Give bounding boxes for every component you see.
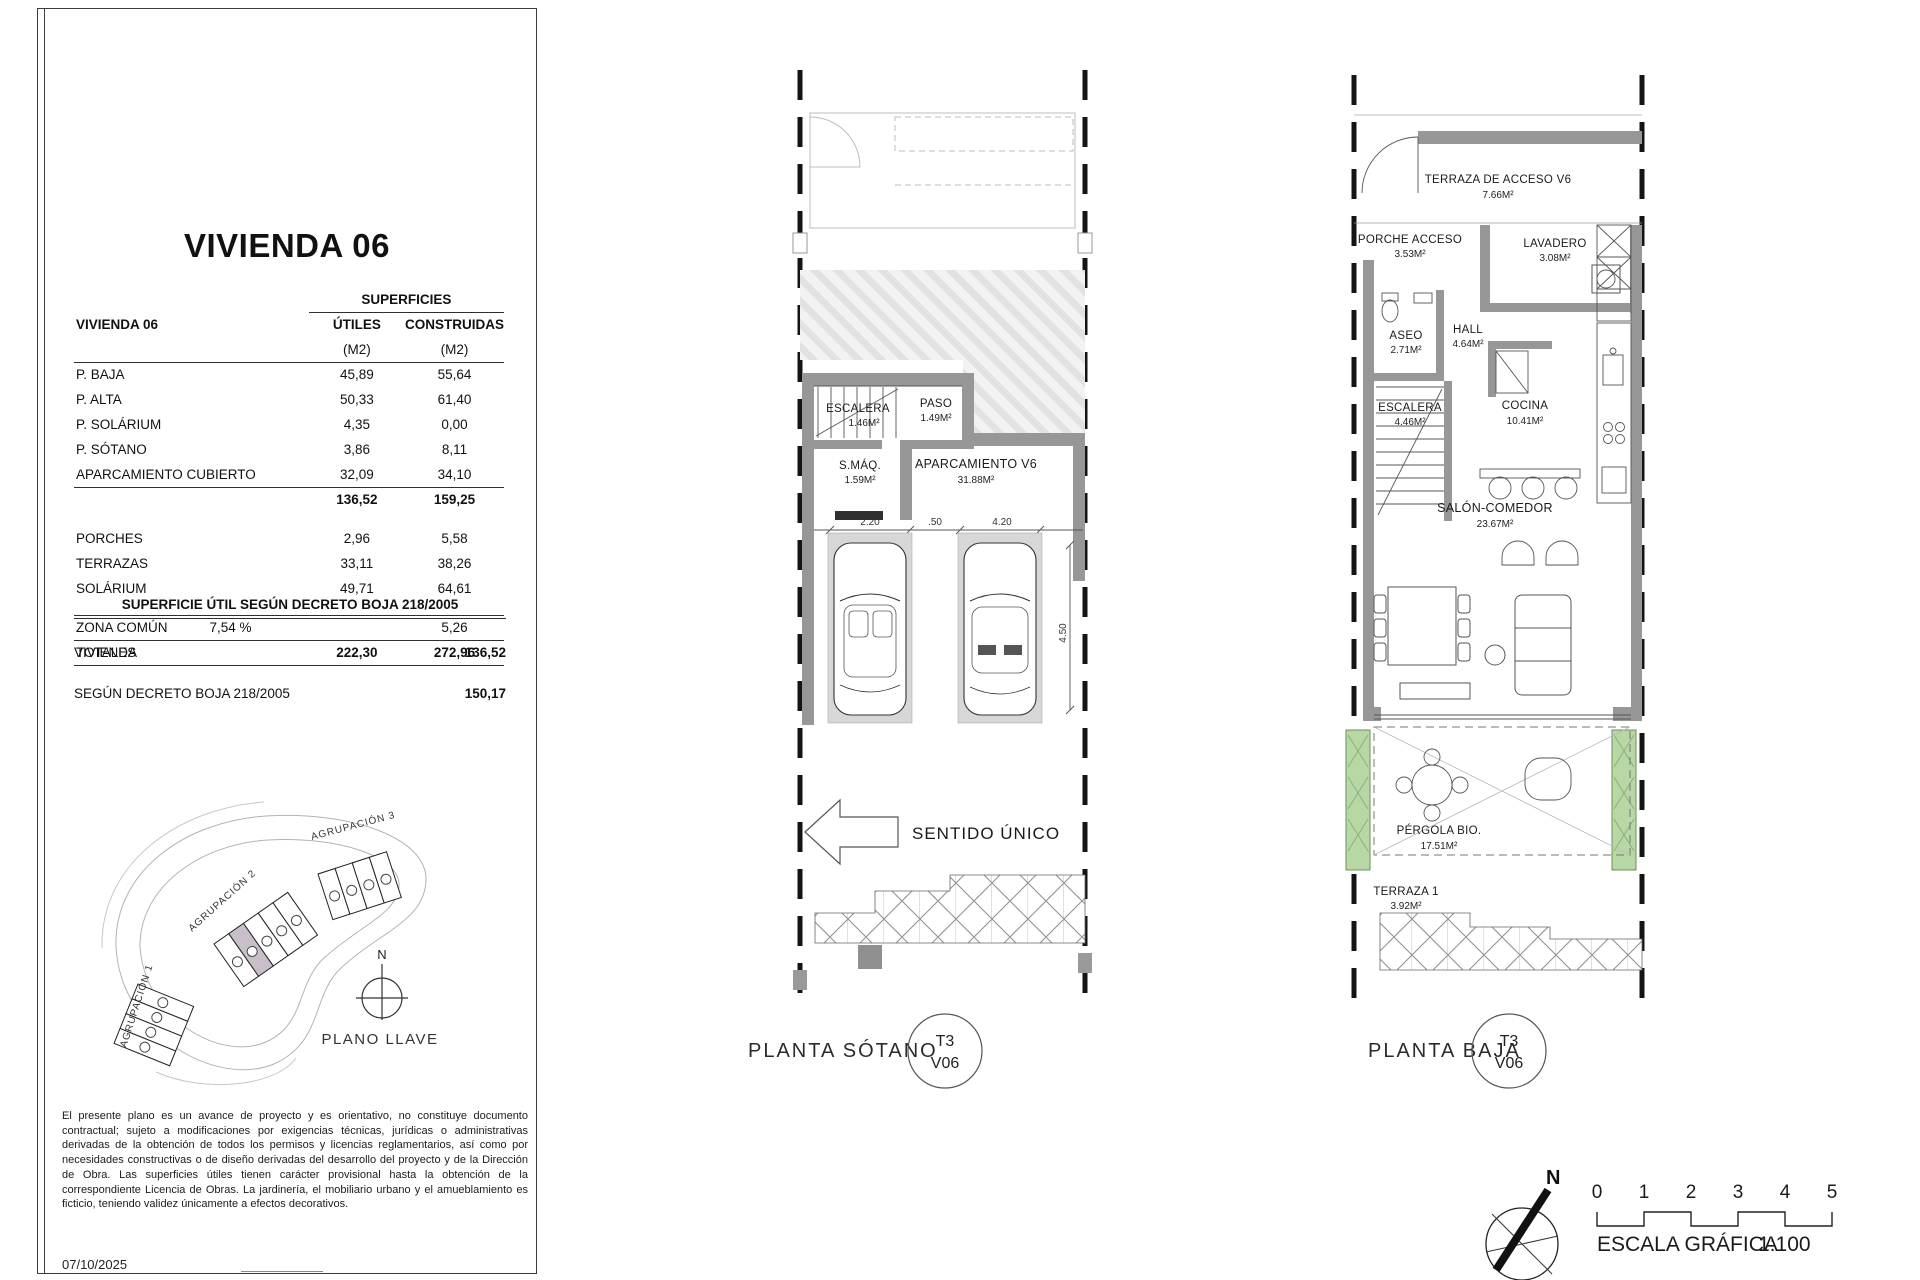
decreto-title: SUPERFICIE ÚTIL SEGÚN DECRETO BOJA 218/2…	[74, 597, 506, 619]
key-plan: AGRUPACIÓN 1 AGRUPACIÓN 2 AGRUPACIÓN 3 N…	[96, 796, 456, 1096]
footer-line	[241, 1271, 323, 1272]
room-label: ASEO	[1389, 330, 1422, 342]
stair-wall	[1444, 381, 1452, 521]
room-area: 17.51M²	[1421, 841, 1458, 852]
dining-table	[1374, 587, 1470, 665]
construidas-unit: (M2)	[405, 337, 504, 362]
key-plan-group-3	[318, 852, 401, 920]
graphic-scale-bar: 0 1 2 3 4 5	[1592, 1182, 1838, 1226]
info-panel: VIVIENDA 06 SUPERFICIES VIVIENDA 06 ÚTIL…	[37, 8, 537, 1274]
room-label: COCINA	[1502, 400, 1549, 412]
svg-text:5: 5	[1827, 1182, 1838, 1203]
surfaces-group-header: SUPERFICIES	[309, 287, 504, 312]
room-label: SALÓN-COMEDOR	[1437, 500, 1553, 515]
kitchen-walls	[1488, 341, 1552, 397]
decreto-row: VIVIENDA 136,52	[74, 645, 506, 660]
room-label: PORCHE ACCESO	[1358, 234, 1462, 246]
room-label: PÉRGOLA BIO.	[1397, 824, 1482, 837]
entry-door	[1362, 137, 1418, 193]
scale-label: ESCALA GRÁFICA	[1597, 1233, 1778, 1256]
terrain-hatch	[800, 270, 1085, 360]
dimension-value: 4.20	[992, 517, 1012, 528]
table-row: TERRAZAS 33,11 38,26	[74, 551, 504, 576]
room-label: TERRAZA DE ACCESO V6	[1425, 174, 1572, 186]
car-convertible	[834, 543, 906, 715]
ground-floor-plan: TERRAZA DE ACCESO V6 7.66M² PORCHE ACCES…	[1340, 55, 1680, 1125]
room-area: 1.49M²	[920, 413, 952, 424]
terrace-retaining-band	[1380, 913, 1642, 970]
plan-badge-unit: V06	[1495, 1055, 1524, 1072]
table-row: P. ALTA 50,33 61,40	[74, 387, 504, 412]
car-sedan	[964, 543, 1036, 715]
wall-marker	[1078, 233, 1092, 253]
dimension-value: .50	[928, 517, 942, 528]
room-area: 10.41M²	[1507, 416, 1544, 427]
room-area: 3.08M²	[1539, 253, 1571, 264]
room-area: 1.59M²	[844, 475, 876, 486]
pillar	[858, 945, 882, 969]
key-plan-north-label: N	[377, 947, 386, 962]
planter-marks	[1348, 735, 1634, 851]
plan-badge-type: T3	[1500, 1033, 1519, 1050]
room-area: 4.46M²	[1394, 417, 1426, 428]
table-row: APARCAMIENTO CUBIERTO 32,09 34,10	[74, 462, 504, 487]
room-label: ESCALERA	[1378, 402, 1442, 414]
room-label: HALL	[1453, 324, 1483, 336]
svg-text:2: 2	[1686, 1182, 1697, 1203]
facade-wall	[1418, 131, 1642, 144]
svg-text:1: 1	[1639, 1182, 1650, 1203]
compass-needle	[1496, 1190, 1548, 1270]
key-plan-group-2	[214, 892, 318, 986]
col-construidas: CONSTRUIDAS	[405, 312, 504, 337]
wall-marker	[793, 233, 807, 253]
table-row: PORCHES 2,96 5,58	[74, 526, 504, 551]
room-area: 31.88M²	[958, 475, 995, 486]
room-area: 4.64M²	[1452, 339, 1484, 350]
room-area: 3.92M²	[1390, 901, 1422, 912]
plan-sheet: VIVIENDA 06 SUPERFICIES VIVIENDA 06 ÚTIL…	[0, 0, 1920, 1280]
utiles-unit: (M2)	[309, 337, 405, 362]
one-way-arrow-icon	[805, 800, 898, 864]
driveway-retaining-band	[815, 875, 1085, 943]
table-row: P. SOLÁRIUM 4,35 0,00	[74, 412, 504, 437]
room-area: 3.53M²	[1394, 249, 1426, 260]
key-plan-compass	[356, 964, 408, 1020]
legal-disclaimer: El presente plano es un avance de proyec…	[62, 1109, 528, 1212]
room-label: PASO	[920, 398, 952, 410]
room-label: APARCAMIENTO V6	[915, 457, 1037, 471]
unit-header: VIVIENDA 06	[74, 312, 309, 337]
table-row: P. SÓTANO 3,86 8,11	[74, 437, 504, 462]
compass-rose	[1486, 1190, 1558, 1280]
basement-floor-plan: ESCALERA 1.46M² PASO 1.49M² S.MÁQ. 1.59M…	[740, 55, 1140, 1125]
table-row: P. BAJA 45,89 55,64	[74, 362, 504, 387]
room-label: TERRAZA 1	[1373, 886, 1438, 898]
room-label: LAVADERO	[1523, 238, 1586, 250]
upper-floor-ghost-outline	[810, 113, 1075, 228]
page-title: VIVIENDA 06	[38, 227, 536, 265]
svg-text:3: 3	[1733, 1182, 1744, 1203]
bar-stools	[1489, 477, 1577, 499]
armchairs	[1502, 541, 1578, 565]
sliding-glass-door	[1374, 715, 1631, 719]
pillar	[1078, 953, 1092, 973]
one-way-label: SENTIDO ÚNICO	[912, 824, 1060, 843]
plan-badge-type: T3	[936, 1033, 955, 1050]
date-stamp: 07/10/2025	[62, 1257, 127, 1272]
decreto-row: SEGÚN DECRETO BOJA 218/2005 150,17	[74, 686, 506, 701]
room-area: 7.66M²	[1482, 190, 1514, 201]
svg-text:4: 4	[1780, 1182, 1791, 1203]
room-label: ESCALERA	[826, 403, 890, 415]
col-utiles: ÚTILES	[309, 312, 405, 337]
plan-badge-unit: V06	[931, 1055, 960, 1072]
room-area: 2.71M²	[1390, 345, 1422, 356]
aseo-fixtures	[1382, 293, 1432, 322]
agrupacion-3-label: AGRUPACIÓN 3	[309, 808, 396, 843]
room-area: 23.67M²	[1477, 519, 1514, 530]
key-plan-caption: PLANO LLAVE	[321, 1031, 438, 1048]
pergola-furniture	[1396, 749, 1571, 821]
room-label: S.MÁQ.	[839, 459, 881, 472]
scale-ratio: 1:100	[1758, 1233, 1811, 1256]
decreto-section: SUPERFICIE ÚTIL SEGÚN DECRETO BOJA 218/2…	[74, 597, 506, 701]
compass-and-scale: N 0 1 2 3 4 5 ESCALA GRÁFICA 1:100	[1470, 1150, 1910, 1280]
dimension-value: 2.20	[860, 517, 880, 528]
subtotal-row: 136,52 159,25	[74, 487, 504, 512]
svg-text:0: 0	[1592, 1182, 1603, 1203]
room-area: 1.46M²	[848, 418, 880, 429]
north-label: N	[1546, 1167, 1560, 1189]
terrain-hatch	[963, 360, 1085, 433]
dimension-value: 4.50	[1058, 623, 1069, 643]
pillar	[793, 970, 807, 990]
